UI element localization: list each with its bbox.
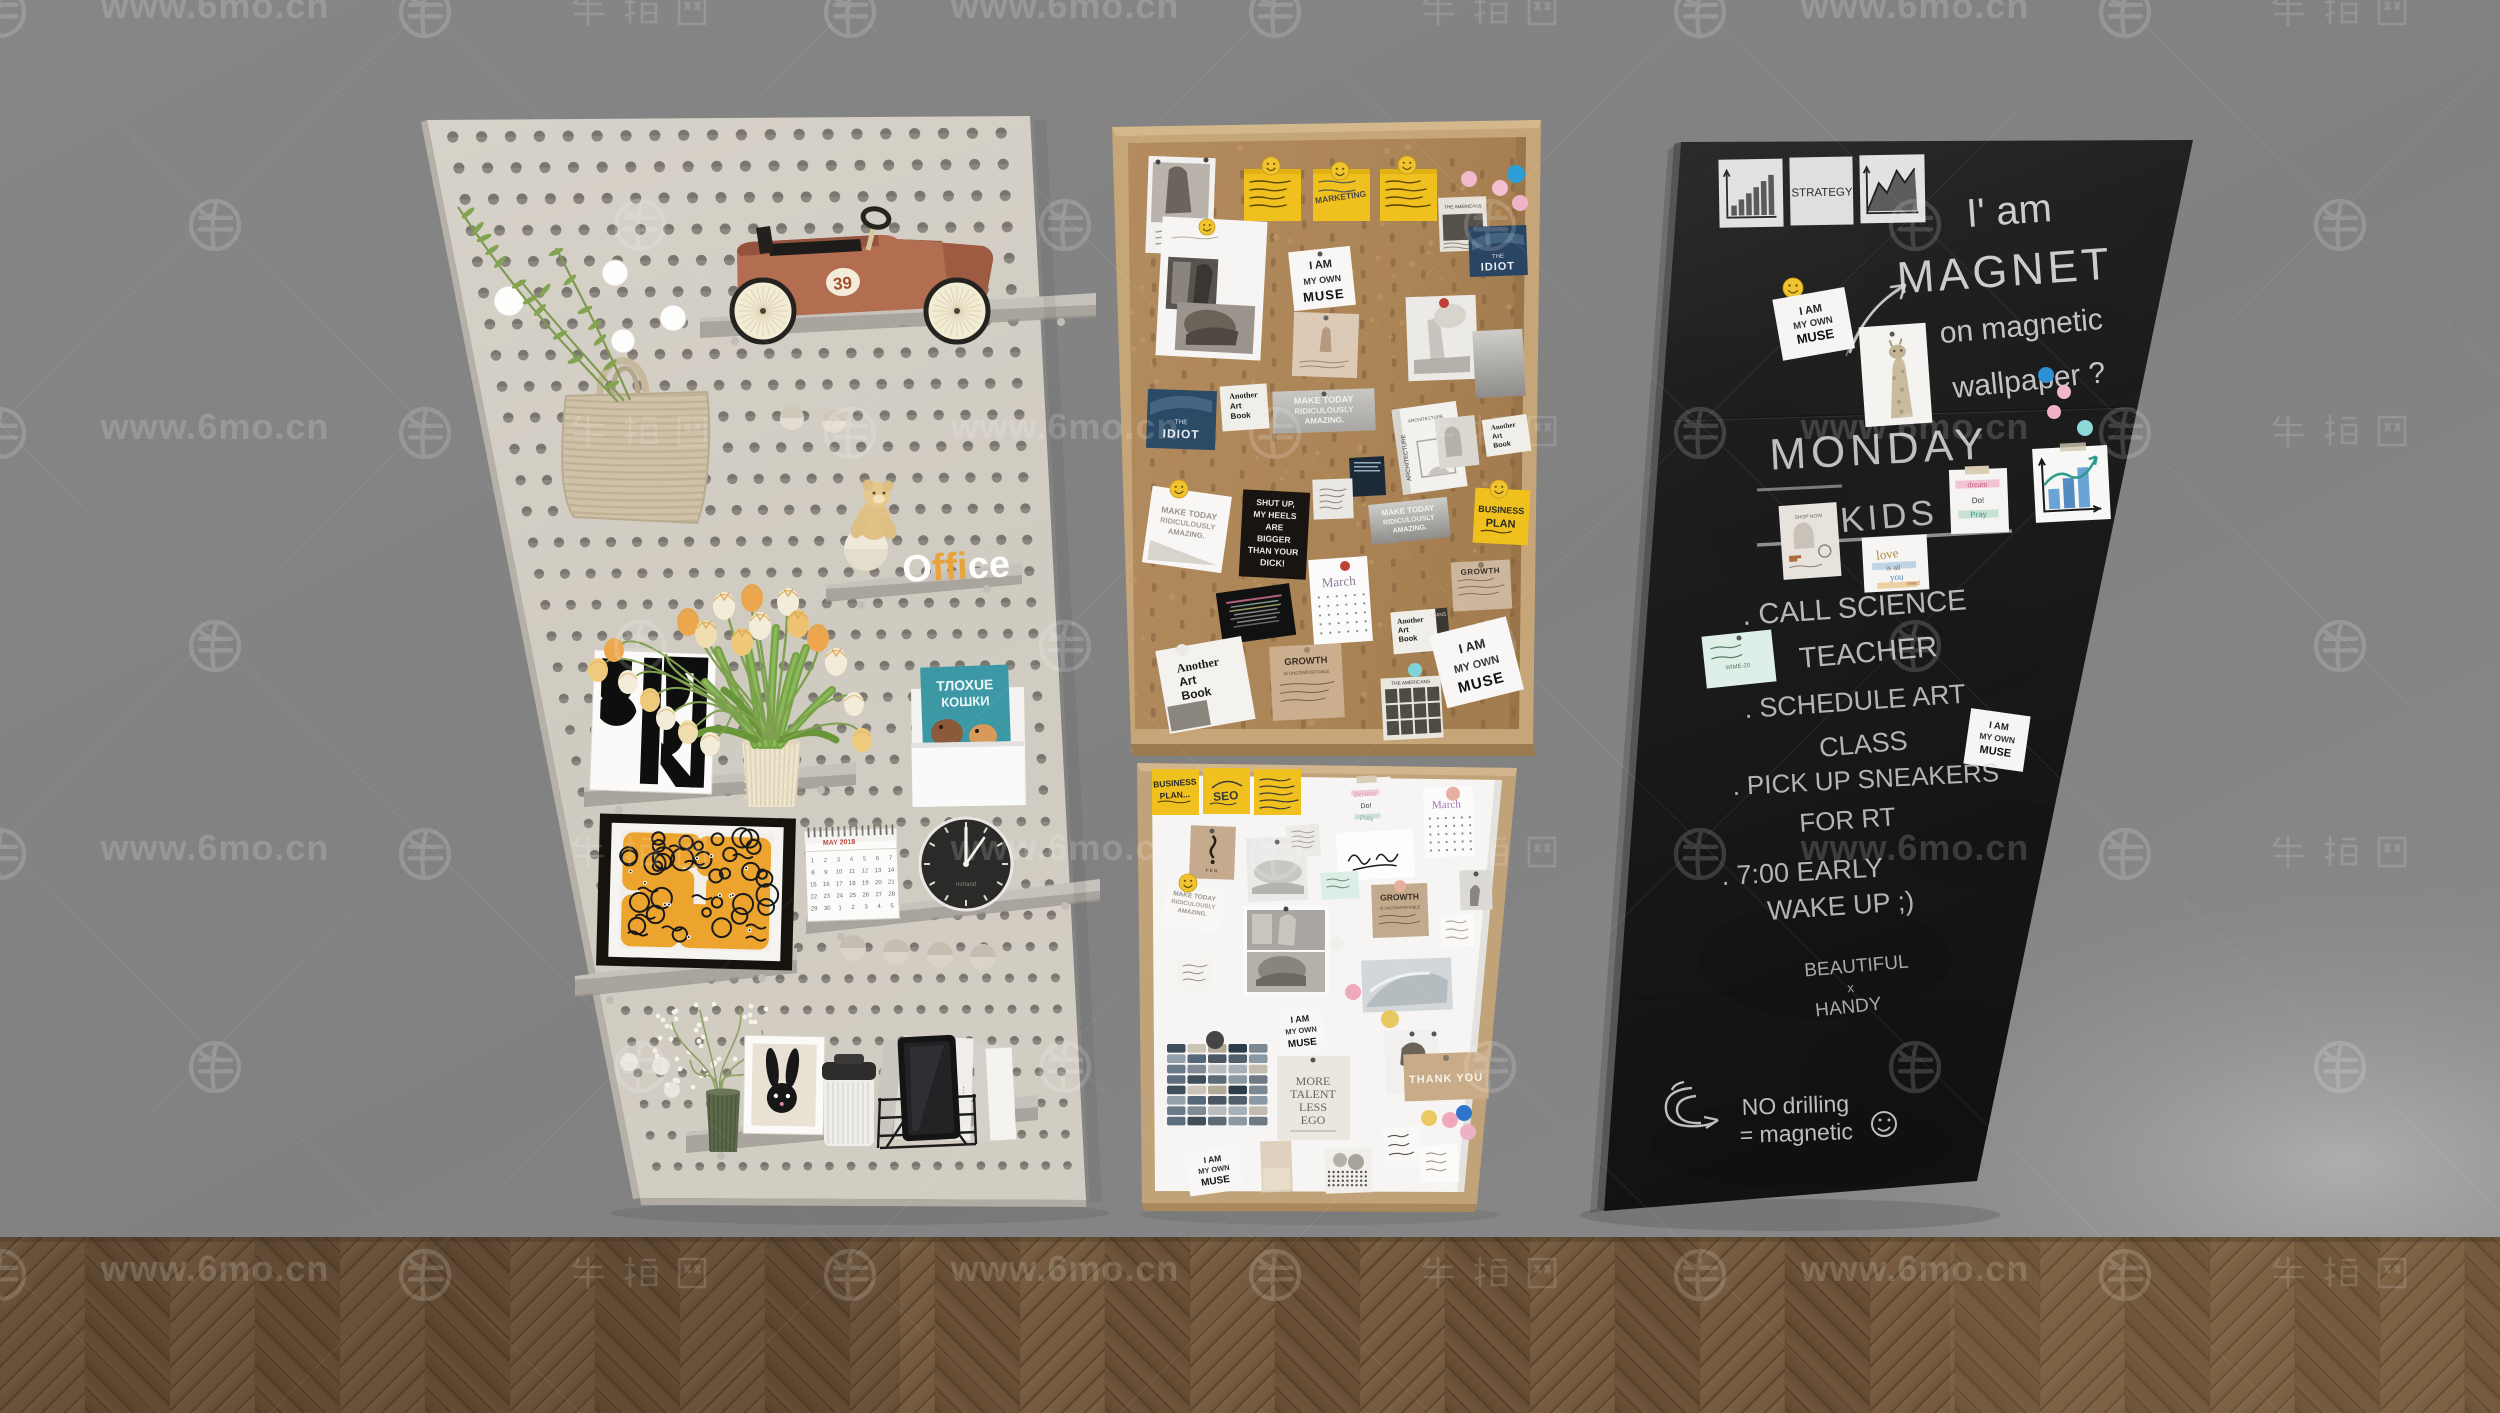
svg-text:you: you	[1890, 572, 1905, 583]
svg-text:23: 23	[823, 894, 831, 900]
svg-text:AMAZING.: AMAZING.	[1304, 415, 1344, 425]
svg-text:GROWTH: GROWTH	[1380, 891, 1419, 902]
svg-text:PLAN...: PLAN...	[1159, 789, 1190, 801]
svg-text:Office: Office	[901, 543, 1011, 591]
svg-text:www.6mo.cn: www.6mo.cn	[950, 0, 1180, 26]
svg-text:www.6mo.cn: www.6mo.cn	[100, 406, 330, 447]
svg-text:love: love	[1875, 545, 1899, 563]
svg-text:24: 24	[836, 893, 844, 899]
svg-text:ARE: ARE	[1265, 522, 1284, 533]
svg-text:need: need	[1906, 581, 1920, 588]
svg-text:www.6mo.cn: www.6mo.cn	[1800, 1248, 2030, 1289]
svg-text:39: 39	[832, 273, 853, 294]
svg-text:IDIOT: IDIOT	[1481, 260, 1516, 273]
svg-text:P E N: P E N	[1205, 868, 1217, 873]
svg-text:LESS: LESS	[1299, 1100, 1327, 1114]
svg-text:dream: dream	[1967, 480, 1988, 490]
svg-text:www.6mo.cn: www.6mo.cn	[100, 0, 330, 26]
svg-text:www.6mo.cn: www.6mo.cn	[100, 827, 330, 868]
svg-text:EGO: EGO	[1301, 1113, 1326, 1127]
svg-text:Do!: Do!	[1972, 496, 1985, 505]
svg-text:www.6mo.cn: www.6mo.cn	[950, 1248, 1180, 1289]
svg-text:22: 22	[810, 894, 818, 900]
svg-text:Pray: Pray	[1970, 510, 1987, 520]
svg-text:www.6mo.cn: www.6mo.cn	[950, 406, 1180, 447]
svg-text:27: 27	[875, 892, 883, 898]
svg-text:www.6mo.cn: www.6mo.cn	[1800, 406, 2030, 447]
svg-text:= magnetic: = magnetic	[1739, 1118, 1853, 1148]
svg-text:25: 25	[849, 893, 857, 899]
svg-text:17: 17	[836, 881, 844, 887]
svg-text:GROWTH: GROWTH	[1284, 655, 1328, 668]
svg-text:Do!: Do!	[1360, 803, 1371, 811]
svg-text:www.6mo.cn: www.6mo.cn	[950, 827, 1180, 868]
svg-text:DICK!: DICK!	[1260, 557, 1285, 568]
svg-text:PLAN: PLAN	[1485, 517, 1516, 531]
svg-text:14: 14	[887, 868, 895, 874]
svg-text:20: 20	[875, 880, 883, 886]
svg-text:I' am: I' am	[1965, 186, 2053, 236]
svg-text:SHUT UP,: SHUT UP,	[1256, 497, 1295, 509]
svg-text:norland: norland	[956, 882, 976, 888]
svg-text:March: March	[1321, 573, 1356, 590]
svg-text:16: 16	[823, 882, 831, 888]
svg-text:www.6mo.cn: www.6mo.cn	[1800, 827, 2030, 868]
svg-text:29: 29	[811, 906, 819, 912]
svg-text:...: ...	[960, 1086, 971, 1094]
svg-text:КОШКИ: КОШКИ	[941, 693, 990, 710]
svg-text:MORE: MORE	[1296, 1074, 1331, 1088]
svg-text:I AM: I AM	[1309, 258, 1333, 272]
svg-text:STRATEGY: STRATEGY	[1791, 186, 1853, 199]
svg-text:www.6mo.cn: www.6mo.cn	[100, 1248, 330, 1289]
svg-text:15: 15	[810, 882, 818, 888]
svg-text:30: 30	[824, 906, 832, 912]
svg-text:ТЛОХUЕ: ТЛОХUЕ	[936, 676, 994, 694]
svg-text:I AM: I AM	[1290, 1013, 1310, 1025]
svg-text:19: 19	[862, 880, 870, 886]
svg-text:NO drilling: NO drilling	[1741, 1090, 1849, 1120]
svg-text:28: 28	[888, 891, 896, 897]
svg-text:THE: THE	[1492, 254, 1504, 260]
svg-text:BIGGER: BIGGER	[1257, 533, 1291, 545]
svg-text:26: 26	[862, 892, 870, 898]
svg-text:TALENT: TALENT	[1290, 1087, 1336, 1101]
svg-text:Art: Art	[1230, 401, 1242, 411]
svg-text:March: March	[1432, 798, 1462, 811]
svg-text:SEO: SEO	[1213, 788, 1239, 804]
svg-text:18: 18	[849, 881, 857, 887]
svg-text:www.6mo.cn: www.6mo.cn	[1800, 0, 2030, 26]
svg-text:Book: Book	[1230, 411, 1251, 421]
svg-text:Book: Book	[1398, 633, 1418, 644]
